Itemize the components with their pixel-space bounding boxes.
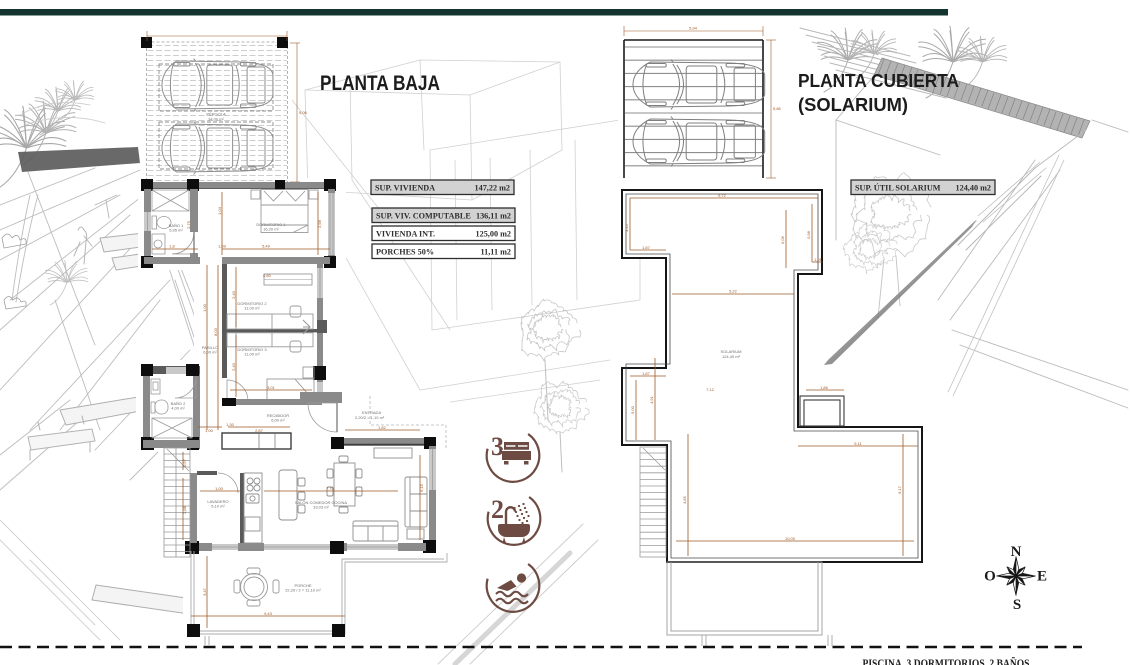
svg-text:1,00: 1,00 xyxy=(202,303,207,312)
svg-text:SUP. VIVIENDA: SUP. VIVIENDA xyxy=(375,183,435,192)
svg-text:33,03 m²: 33,03 m² xyxy=(313,505,329,510)
svg-text:3,15: 3,15 xyxy=(624,223,629,232)
svg-text:10,00: 10,00 xyxy=(785,536,796,541)
svg-text:S: S xyxy=(1013,597,1021,613)
svg-text:4,85: 4,85 xyxy=(682,495,687,504)
svg-text:136,11 m2: 136,11 m2 xyxy=(476,211,511,220)
svg-text:6,06: 6,06 xyxy=(780,235,785,244)
svg-text:34,00 m²: 34,00 m² xyxy=(208,117,224,122)
svg-text:5,49: 5,49 xyxy=(262,244,271,249)
svg-text:2,87: 2,87 xyxy=(255,428,264,433)
svg-text:2,40: 2,40 xyxy=(231,290,236,299)
svg-text:5,86: 5,86 xyxy=(773,106,782,111)
svg-text:PLANTA BAJA: PLANTA BAJA xyxy=(320,71,440,95)
svg-text:5,22: 5,22 xyxy=(729,289,738,294)
svg-text:6,00 m²: 6,00 m² xyxy=(203,350,217,355)
svg-text:16,20 m²: 16,20 m² xyxy=(263,227,279,232)
svg-text:9,72: 9,72 xyxy=(718,193,727,198)
svg-text:5,00: 5,00 xyxy=(630,405,635,414)
svg-text:147,22 m2: 147,22 m2 xyxy=(475,183,510,192)
svg-text:125,00 m2: 125,00 m2 xyxy=(476,229,511,238)
svg-text:1,00: 1,00 xyxy=(215,486,224,491)
svg-text:124,40 m²: 124,40 m² xyxy=(722,354,741,359)
svg-text:PISCINA, 3 DORMITORIOS, 2 BAÑO: PISCINA, 3 DORMITORIOS, 2 BAÑOS xyxy=(863,656,1030,665)
svg-text:PORCHES 50%: PORCHES 50% xyxy=(376,247,434,256)
svg-text:0,98: 0,98 xyxy=(806,230,811,239)
svg-text:O: O xyxy=(984,569,996,585)
svg-text:1,87: 1,87 xyxy=(642,371,651,376)
svg-text:1,00: 1,00 xyxy=(205,428,214,433)
svg-text:22,20 / 2 = 11,10 m²: 22,20 / 2 = 11,10 m² xyxy=(285,588,321,593)
svg-text:5,94: 5,94 xyxy=(689,26,698,31)
svg-text:SUP. ÚTIL SOLARIUM: SUP. ÚTIL SOLARIUM xyxy=(855,182,941,192)
svg-text:1,82: 1,82 xyxy=(378,425,387,430)
svg-text:4,00 m²: 4,00 m² xyxy=(171,406,185,411)
svg-text:N: N xyxy=(1011,544,1022,560)
svg-text:0,80: 0,80 xyxy=(263,273,272,278)
svg-text:VIVIENDA INT.: VIVIENDA INT. xyxy=(376,229,435,238)
svg-text:5,11: 5,11 xyxy=(854,441,862,446)
svg-text:5,10 m²: 5,10 m² xyxy=(211,504,225,509)
svg-text:5,08: 5,08 xyxy=(299,110,308,115)
svg-text:1,59: 1,59 xyxy=(218,244,227,249)
svg-text:0,97: 0,97 xyxy=(182,458,187,467)
svg-text:6,17: 6,17 xyxy=(897,485,902,494)
svg-text:11,00 m²: 11,00 m² xyxy=(244,352,260,357)
svg-text:(SOLARIUM): (SOLARIUM) xyxy=(798,94,908,115)
svg-text:3,47: 3,47 xyxy=(202,587,207,596)
svg-text:SUP. VIV. COMPUTABLE: SUP. VIV. COMPUTABLE xyxy=(376,211,471,220)
svg-text:1,01: 1,01 xyxy=(814,257,823,262)
svg-text:7,12: 7,12 xyxy=(706,387,715,392)
svg-text:5,95 m²: 5,95 m² xyxy=(169,228,183,233)
svg-text:1,04: 1,04 xyxy=(217,206,222,215)
svg-text:4,91: 4,91 xyxy=(649,395,654,404)
svg-text:PLANTA CUBIERTA: PLANTA CUBIERTA xyxy=(798,70,959,91)
svg-text:9,43: 9,43 xyxy=(264,611,273,616)
svg-text:1,87: 1,87 xyxy=(642,245,651,250)
svg-text:6,00 m²: 6,00 m² xyxy=(271,418,285,423)
svg-text:2,88: 2,88 xyxy=(182,505,187,514)
svg-text:E: E xyxy=(1037,569,1047,585)
svg-text:11,11 m2: 11,11 m2 xyxy=(481,247,511,256)
svg-text:3,01: 3,01 xyxy=(267,385,276,390)
svg-text:8,03: 8,03 xyxy=(213,327,218,336)
svg-text:1,30: 1,30 xyxy=(226,422,235,427)
svg-text:2,98: 2,98 xyxy=(317,219,322,228)
svg-text:2,79: 2,79 xyxy=(186,220,191,229)
svg-text:1,8: 1,8 xyxy=(169,244,175,249)
svg-text:2: 2 xyxy=(491,495,504,524)
svg-text:2,40: 2,40 xyxy=(231,362,236,371)
svg-text:7,70: 7,70 xyxy=(326,486,335,491)
svg-text:124,40 m2: 124,40 m2 xyxy=(956,183,991,192)
svg-text:11,00 m²: 11,00 m² xyxy=(244,306,260,311)
svg-text:6,15: 6,15 xyxy=(419,483,424,492)
svg-text:1,86: 1,86 xyxy=(820,385,829,390)
